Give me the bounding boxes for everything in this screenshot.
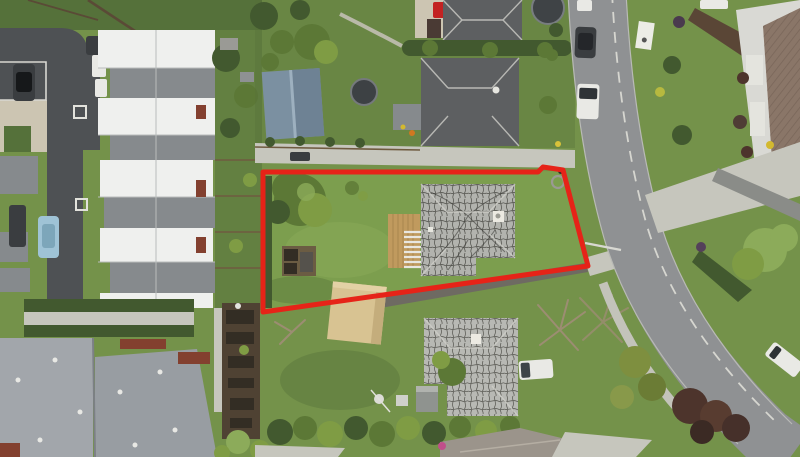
tree (220, 118, 240, 138)
carport-roof (0, 156, 38, 194)
roof-vent (493, 87, 500, 94)
shrub (355, 138, 365, 148)
raised-bed (230, 418, 252, 428)
car-roof-glass (16, 72, 32, 92)
upper-neighbours (250, 0, 575, 168)
ute-cab-glass (579, 88, 597, 100)
olive-bush (619, 346, 651, 378)
raised-bed (228, 378, 254, 388)
yellow-marker (555, 141, 561, 147)
blue-grey-shed (262, 68, 325, 140)
shrub (243, 173, 257, 187)
tree (290, 0, 310, 20)
house-wall-panel (746, 55, 763, 85)
attached-garage (393, 104, 421, 130)
yard-shed (220, 38, 238, 50)
tree (539, 96, 557, 114)
car-on-driveway (290, 152, 310, 161)
raised-bed (226, 332, 254, 344)
apartment-development (0, 299, 270, 457)
top-house (415, 0, 522, 40)
large-bush (770, 224, 798, 252)
house-wall-panel (750, 102, 765, 136)
olive-bush (610, 385, 634, 409)
white-table (396, 395, 408, 406)
hedge-row (24, 299, 194, 312)
lawn-shrub (663, 56, 681, 74)
tree-highlight (297, 183, 315, 201)
compost-bin (284, 249, 298, 261)
hedge-blob (422, 40, 438, 56)
trampoline (532, 0, 564, 24)
raised-bed (226, 310, 254, 324)
brick-accent (196, 180, 206, 197)
yellow-toy (401, 125, 406, 130)
trampoline (351, 79, 377, 105)
olive-bush (638, 373, 666, 401)
raised-bed (228, 356, 254, 368)
tree (261, 53, 279, 71)
maroon-bush (690, 420, 714, 444)
tree-canopy (266, 200, 290, 224)
maroon-shrub (741, 146, 753, 158)
ute-cab (520, 362, 530, 378)
shrub (265, 137, 275, 147)
parked-car (9, 205, 26, 247)
garden-marker (235, 303, 241, 309)
dark-outbuilding (427, 19, 441, 38)
apartment-roof (95, 349, 217, 457)
apartment-roof (0, 338, 93, 457)
car-glass (578, 33, 594, 51)
townhouse-roof-gray (110, 68, 215, 98)
large-tree-highlight (314, 40, 338, 64)
car-roof-glass (42, 224, 55, 248)
tree (250, 2, 278, 30)
hedge-row (24, 325, 194, 337)
tree (234, 84, 258, 108)
second-house-roof (421, 58, 519, 146)
brick-wall (120, 339, 166, 349)
vege-garden (282, 246, 316, 276)
white-car-top (700, 0, 728, 9)
maroon-bush (722, 414, 750, 442)
shrub (325, 137, 335, 147)
purple-shrub (696, 242, 706, 252)
bush (226, 430, 250, 454)
yellow-flowers (655, 87, 665, 97)
tree-over-roof (432, 351, 450, 369)
white-ute (518, 359, 553, 380)
carport-roof (0, 268, 30, 292)
pad-garden (4, 126, 31, 152)
parked-white-ute-street (576, 84, 599, 120)
aerial-photo (0, 0, 800, 457)
verge-shrub (546, 49, 558, 61)
verge-shrub (549, 23, 563, 37)
yellow-object (766, 141, 774, 149)
skylight (428, 227, 433, 232)
chimney-flue (496, 214, 501, 219)
aerial-photo-canvas (0, 0, 800, 457)
brick-accent (196, 105, 206, 119)
parked-white-car (95, 79, 107, 97)
lawn-shrub (672, 125, 692, 145)
community-garden (222, 303, 260, 439)
hedge-blob (482, 42, 498, 58)
parked-car-street (577, 0, 592, 11)
shed-roof-edge (416, 386, 438, 392)
backyard-strip (212, 30, 262, 310)
maroon-shrub (737, 72, 749, 84)
shrub (345, 181, 359, 195)
large-bush (732, 248, 764, 280)
parked-dark-car-street (574, 27, 596, 59)
maroon-shrub (733, 115, 747, 129)
shrub (229, 239, 243, 253)
left-development (0, 0, 270, 457)
brick-wall (178, 352, 210, 364)
townhouse-roof-gray (110, 262, 215, 293)
garden-shed (300, 252, 313, 272)
top-grass-strip (0, 0, 262, 30)
townhouse-roof-gray (110, 135, 215, 160)
orange-toy (409, 130, 415, 136)
chimney (471, 334, 481, 344)
tree (270, 30, 294, 54)
purple-shrub (673, 16, 685, 28)
townhouse-roof-gray (104, 197, 215, 228)
footpath (24, 312, 194, 325)
brick-wall (0, 443, 20, 457)
shrub (295, 136, 305, 146)
yard-shed (240, 72, 254, 82)
tan-garage (327, 281, 387, 344)
compost-bin (284, 263, 297, 274)
townhouse-row (98, 30, 215, 308)
raised-bed (230, 398, 254, 410)
brick-accent (196, 237, 206, 253)
shrub (358, 191, 368, 201)
garden-path (214, 308, 222, 412)
pink-flower-bush (438, 442, 446, 450)
garden-plant (239, 345, 249, 355)
